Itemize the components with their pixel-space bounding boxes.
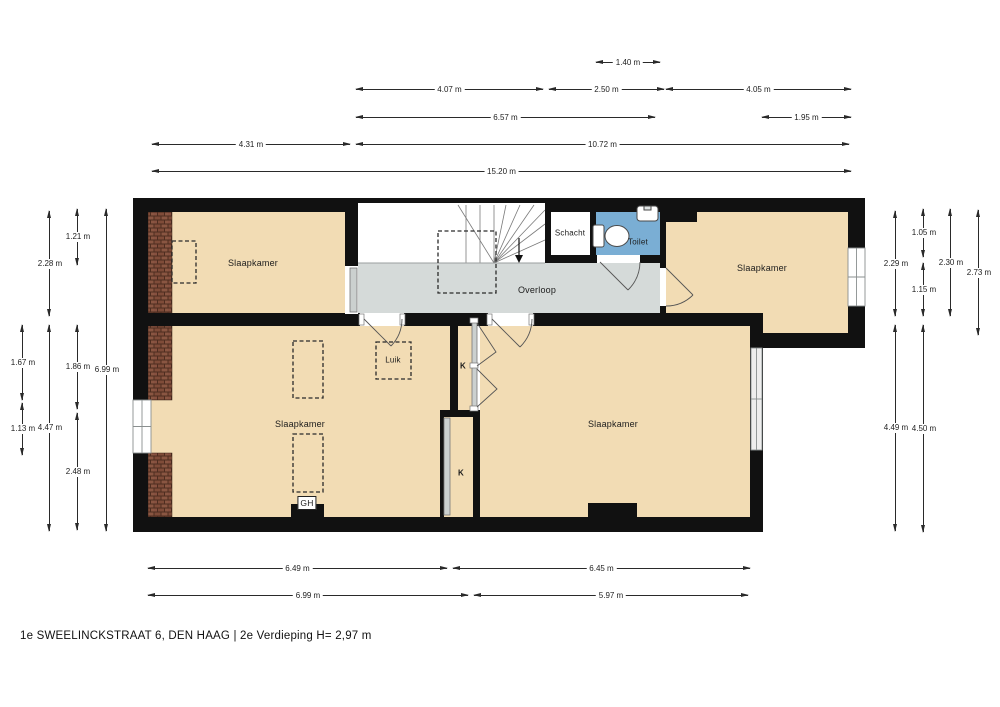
brick-chimney-strip	[148, 212, 172, 517]
dimension-label: 2.48 m	[63, 467, 93, 477]
sink-icon	[637, 206, 658, 221]
room-label-slaapkamer-bottom-right: Slaapkamer	[588, 419, 638, 429]
room-label-geiser: GH	[297, 496, 316, 510]
window-left	[133, 400, 151, 453]
dimension-line-vertical: 1.15 m	[923, 263, 924, 316]
toilet-icon	[593, 225, 629, 247]
room-label-slaapkamer-top-left: Slaapkamer	[228, 258, 278, 268]
dimension-line-vertical: 2.29 m	[895, 211, 896, 316]
dimension-line-horizontal: 4.31 m	[152, 144, 350, 145]
floorplan-page: SlaapkamerSlaapkamerSlaapkamerSlaapkamer…	[0, 0, 1000, 707]
dimension-label: 4.47 m	[35, 423, 65, 433]
room-label-slaapkamer-bottom-left: Slaapkamer	[275, 419, 325, 429]
dimension-label: 2.28 m	[35, 259, 65, 269]
dimension-line-horizontal: 2.50 m	[549, 89, 664, 90]
dimension-label: 6.49 m	[282, 564, 312, 574]
dimension-label: 4.50 m	[909, 424, 939, 434]
window-right-top	[848, 248, 865, 306]
room-label-schacht: Schacht	[555, 229, 585, 238]
room-label-slaapkamer-top-right: Slaapkamer	[737, 263, 787, 273]
dimension-line-horizontal: 4.05 m	[666, 89, 851, 90]
dimension-line-vertical: 2.73 m	[978, 210, 979, 335]
dimension-line-horizontal: 5.97 m	[474, 595, 748, 596]
dimension-label: 1.67 m	[8, 358, 38, 368]
dimension-label: 4.07 m	[434, 85, 464, 95]
staircase	[358, 203, 545, 263]
dimension-line-horizontal: 1.40 m	[596, 62, 660, 63]
dimension-label: 2.29 m	[881, 259, 911, 269]
room-label-kast-upper: K	[460, 362, 466, 371]
dimension-line-vertical: 2.30 m	[950, 209, 951, 316]
dimension-label: 1.13 m	[8, 424, 38, 434]
dimension-line-horizontal: 6.99 m	[148, 595, 468, 596]
room-label-kast-lower: K	[458, 469, 464, 478]
dimension-line-vertical: 1.21 m	[77, 209, 78, 265]
room-label-overloop: Overloop	[518, 285, 556, 295]
dimension-line-horizontal: 4.07 m	[356, 89, 543, 90]
dimension-line-vertical: 4.47 m	[49, 325, 50, 531]
window-right-bottom	[751, 348, 762, 450]
dimension-label: 1.15 m	[909, 285, 939, 295]
dimension-label: 1.86 m	[63, 362, 93, 372]
dimension-label: 2.73 m	[964, 268, 994, 278]
dimension-label: 6.99 m	[92, 365, 122, 375]
dimension-label: 4.05 m	[743, 85, 773, 95]
dimension-line-vertical: 6.99 m	[106, 209, 107, 531]
plan-caption: 1e SWEELINCKSTRAAT 6, DEN HAAG | 2e Verd…	[20, 630, 372, 642]
dimension-line-vertical: 2.48 m	[77, 413, 78, 530]
dimension-label: 1.40 m	[613, 58, 643, 68]
door-closet-lower	[444, 418, 450, 515]
door-top-left-bedroom	[345, 266, 358, 314]
dimension-line-horizontal: 6.57 m	[356, 117, 655, 118]
dimension-line-vertical: 1.86 m	[77, 325, 78, 409]
dimension-line-vertical: 2.28 m	[49, 211, 50, 316]
dimension-label: 6.45 m	[586, 564, 616, 574]
dimension-line-horizontal: 15.20 m	[152, 171, 851, 172]
dimension-label: 1.05 m	[909, 228, 939, 238]
dimension-label: 4.31 m	[236, 140, 266, 150]
dimension-line-horizontal: 6.49 m	[148, 568, 447, 569]
dimension-label: 6.99 m	[293, 591, 323, 601]
dimension-label: 5.97 m	[596, 591, 626, 601]
dimension-label: 1.95 m	[791, 113, 821, 123]
dimension-label: 15.20 m	[484, 167, 519, 177]
dimension-label: 2.30 m	[936, 258, 966, 268]
dimension-label: 10.72 m	[585, 140, 620, 150]
floor-plan-drawing	[0, 0, 1000, 707]
dimension-line-horizontal: 10.72 m	[356, 144, 849, 145]
dimension-label: 2.50 m	[591, 85, 621, 95]
dimension-label: 4.49 m	[881, 423, 911, 433]
dimension-line-vertical: 1.67 m	[22, 325, 23, 400]
dimension-line-horizontal: 6.45 m	[453, 568, 750, 569]
dimension-line-vertical: 1.05 m	[923, 209, 924, 257]
dimension-line-vertical: 1.13 m	[22, 403, 23, 455]
dimension-line-horizontal: 1.95 m	[762, 117, 851, 118]
dimension-line-vertical: 4.50 m	[923, 325, 924, 532]
room-label-toilet: Toilet	[628, 238, 648, 247]
room-label-luik: Luik	[385, 356, 400, 365]
dimension-label: 1.21 m	[63, 232, 93, 242]
dimension-label: 6.57 m	[490, 113, 520, 123]
dimension-line-vertical: 4.49 m	[895, 325, 896, 531]
